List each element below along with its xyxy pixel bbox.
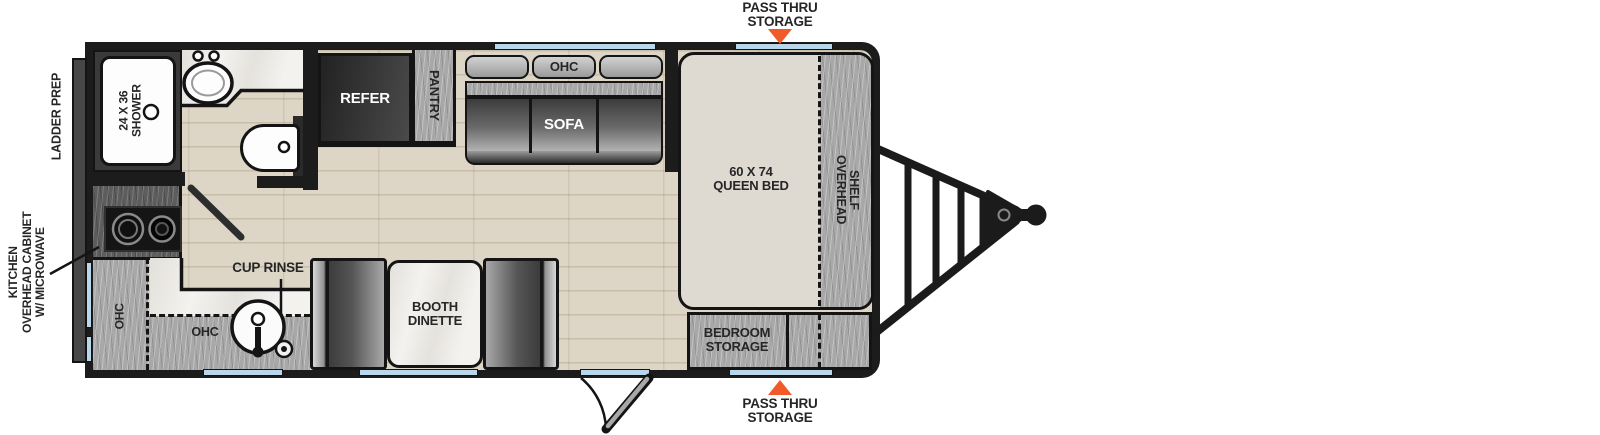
- window-top-bed: [735, 43, 833, 50]
- kitchen-overhead-cabinet-label: KITCHEN OVERHEAD CABINET W/ MICROWAVE: [7, 197, 48, 347]
- sofa-seat-divider: [596, 97, 599, 153]
- overhead-shelf-label-box: OVERHEAD SHELF: [824, 120, 870, 260]
- hitch-rail-bottom: [878, 221, 1016, 331]
- sofa-ohc-box-right: [599, 55, 663, 79]
- window-left-upper: [86, 262, 92, 328]
- sofa-seat-divider: [529, 97, 532, 153]
- sofa-seat-front: [465, 151, 663, 165]
- bathroom-wall-bottom: [93, 172, 185, 186]
- dinette-table: BOOTH DINETTE: [387, 260, 483, 368]
- dinette-bench-left: [310, 258, 387, 370]
- pass-thru-top-label: PASS THRU STORAGE: [710, 1, 850, 29]
- window-bottom-dinette: [359, 369, 478, 376]
- hitch-neck: [1022, 209, 1032, 221]
- hitch-rail-top: [878, 149, 1016, 210]
- entry-door-swing-arc: [581, 378, 606, 429]
- kitchen-ohc-counter-bottom: [148, 316, 310, 370]
- sofa-bed-divider-wall: [665, 50, 678, 172]
- sofa-dash-line: [467, 95, 661, 98]
- sofa-ohc-label: OHC: [550, 60, 578, 74]
- sofa-label: SOFA: [544, 117, 584, 133]
- pantry-label: PANTRY: [427, 70, 441, 121]
- pass-thru-bottom-arrow-icon: [768, 380, 792, 395]
- bedroom-storage-label: BEDROOM STORAGE: [687, 326, 787, 353]
- cooktop: [104, 206, 182, 252]
- window-bottom-kitchen: [203, 369, 283, 376]
- window-top-sofa: [494, 43, 656, 50]
- cup-rinse-label: CUP RINSE: [218, 261, 318, 275]
- hitch-coupler: [988, 192, 1028, 238]
- ladder-prep-label: LADDER PREP: [50, 57, 63, 177]
- bathroom-wall-right: [303, 50, 318, 190]
- sofa-ohc-box-center: OHC: [532, 55, 596, 79]
- rear-bumper: [72, 58, 87, 363]
- entry-door-panel: [606, 378, 649, 429]
- ohc-dash-bottom: [150, 314, 310, 317]
- hitch-latch-icon: [999, 210, 1010, 221]
- entry-door-panel-fill: [608, 379, 647, 426]
- overhead-shelf-dash: [818, 56, 821, 306]
- booth-dinette-label: BOOTH DINETTE: [408, 300, 462, 327]
- shower-label: 24 X 36 SHOWER: [117, 65, 142, 157]
- pass-thru-top-arrow-icon: [768, 29, 792, 44]
- pantry: PANTRY: [412, 50, 456, 147]
- sofa-seat: SOFA: [465, 97, 663, 153]
- bedroom-storage-dash: [818, 314, 821, 368]
- toilet: [240, 124, 300, 172]
- overhead-shelf-label: OVERHEAD SHELF: [834, 155, 860, 224]
- kitchen-ohc-bottom-label: OHC: [175, 326, 235, 339]
- pass-thru-bottom-label: PASS THRU STORAGE: [710, 397, 850, 425]
- floorplan: LADDER PREP KITCHEN OVERHEAD CABINET W/ …: [0, 0, 1600, 435]
- ohc-dash-top: [93, 257, 148, 260]
- refer-label: REFER: [340, 91, 390, 107]
- kitchen-ohc-left-label: OHC: [114, 281, 127, 351]
- queen-bed-label: 60 X 74 QUEEN BED: [690, 165, 812, 192]
- ohc-dash-vertical: [146, 258, 149, 370]
- window-bottom-storage: [729, 369, 833, 376]
- sofa-ohc-box-left: [465, 55, 529, 79]
- window-left-lower: [86, 336, 92, 362]
- toilet-stub-wall: [257, 176, 317, 188]
- hitch-ball: [1026, 205, 1047, 226]
- entry-door-opening: [580, 369, 650, 376]
- dinette-bench-right: [483, 258, 559, 370]
- refrigerator: REFER: [318, 53, 412, 147]
